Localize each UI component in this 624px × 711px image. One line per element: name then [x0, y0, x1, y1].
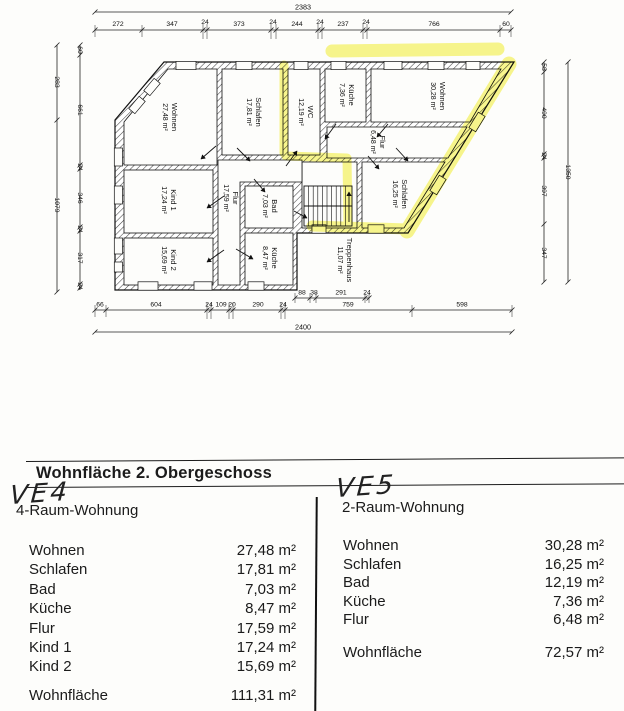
window — [236, 61, 252, 69]
dim: 317 — [76, 252, 83, 264]
window — [248, 282, 264, 290]
dim: 58 — [540, 63, 547, 71]
dim: 24 — [362, 19, 370, 26]
dim: 24 — [205, 302, 213, 309]
dim: 60 — [76, 46, 83, 54]
dim: 24 — [279, 302, 287, 309]
dim-right-total: 1350 — [564, 164, 571, 179]
dim: 346 — [76, 192, 83, 204]
dim: 347 — [166, 21, 178, 28]
dim: 766 — [428, 21, 440, 28]
dim: 661 — [76, 104, 83, 116]
window — [466, 61, 480, 69]
room-area: 7,36 m² — [553, 593, 604, 612]
dim: 24 — [76, 163, 83, 171]
room-label: Kind 1 — [16, 638, 72, 657]
dim: 24 — [363, 290, 371, 297]
label-treppenhaus: Treppenhaus11,07 m² — [336, 238, 354, 283]
room-area: 17,59 m² — [237, 619, 296, 638]
left-apartment-type: 4-Raum-Wohnung — [16, 502, 138, 519]
room-label: Wohnen — [340, 537, 399, 556]
room-area: 7,03 m² — [245, 580, 296, 599]
window — [114, 186, 122, 204]
dim: 759 — [342, 302, 354, 309]
room-area: 12,19 m² — [545, 574, 604, 593]
room-kind1-ve4 — [124, 170, 213, 233]
horizontal-rule-top — [26, 457, 624, 462]
area-row: Schlafen16,25 m² — [340, 556, 604, 575]
room-label: Küche — [16, 599, 72, 618]
dim: 244 — [291, 21, 303, 28]
window — [176, 61, 196, 69]
dim: 20 — [228, 302, 236, 309]
window — [294, 61, 308, 69]
floor-plan-drawing: Wohnen27,48 m² Schlafen17,81 m² WC12,19 … — [0, 0, 624, 455]
room-area: 27,48 m² — [237, 541, 296, 560]
ve4-total-row: Wohnfläche 111,31 m² — [16, 687, 296, 704]
dim: 24 — [316, 19, 324, 26]
dim: 373 — [233, 21, 245, 28]
room-area: 17,81 m² — [237, 560, 296, 579]
room-label: Flur — [16, 619, 55, 638]
room-area: 8,47 m² — [245, 599, 296, 618]
window — [114, 238, 122, 254]
room-area: 15,69 m² — [237, 657, 296, 676]
total-label: Wohnfläche — [16, 687, 108, 704]
dim: 66 — [96, 302, 104, 309]
area-row: Bad7,03 m² — [16, 580, 296, 599]
room-label: Schlafen — [340, 556, 401, 575]
window — [331, 61, 346, 69]
column-divider — [314, 497, 317, 711]
dim: 291 — [335, 290, 347, 297]
window — [114, 262, 122, 272]
dim: 88 — [298, 290, 306, 297]
room-area: 17,24 m² — [237, 638, 296, 657]
table-title: Wohnfläche 2. Obergeschoss — [36, 464, 272, 483]
dim: 38 — [310, 290, 318, 297]
area-row: Wohnen30,28 m² — [340, 537, 604, 556]
area-row: Küche8,47 m² — [16, 599, 296, 618]
area-row: Schlafen17,81 m² — [16, 560, 296, 579]
room-area: 16,25 m² — [545, 556, 604, 575]
room-label: Schlafen — [16, 560, 87, 579]
highlight-bottom-wall — [312, 226, 407, 229]
area-row: Kind 215,69 m² — [16, 657, 296, 676]
area-row: Kind 117,24 m² — [16, 638, 296, 657]
dim: 283 — [53, 76, 60, 88]
room-label: Küche — [340, 593, 386, 612]
dim-top-total: 2383 — [295, 3, 311, 12]
horizontal-rule-under-title — [26, 483, 624, 488]
room-label: Bad — [16, 580, 56, 599]
room-area: 30,28 m² — [545, 537, 604, 556]
dim: 397 — [540, 185, 547, 197]
area-row: Flur6,48 m² — [340, 611, 604, 630]
dim: 490 — [540, 107, 547, 119]
scanned-document-page: Wohnen27,48 m² Schlafen17,81 m² WC12,19 … — [0, 0, 624, 711]
room-label: Flur — [340, 611, 369, 630]
window — [114, 148, 122, 166]
room-label: Wohnen — [16, 541, 85, 560]
dim: 272 — [112, 21, 124, 28]
dim: 347 — [540, 247, 547, 259]
room-label: Bad — [340, 574, 370, 593]
dim: 290 — [252, 302, 264, 309]
dim: 60 — [502, 21, 510, 28]
room-kind2-ve4 — [124, 238, 213, 285]
area-row: Flur17,59 m² — [16, 619, 296, 638]
room-label: Kind 2 — [16, 657, 72, 676]
total-label: Wohnfläche — [340, 644, 422, 661]
window — [194, 282, 212, 290]
dim: 1079 — [53, 197, 60, 212]
ve4-room-list: Wohnen27,48 m² Schlafen17,81 m² Bad7,03 … — [16, 541, 296, 677]
right-apartment-type: 2-Raum-Wohnung — [342, 499, 464, 516]
area-row: Küche7,36 m² — [340, 593, 604, 612]
dim: 24 — [76, 225, 83, 233]
area-row: Wohnen27,48 m² — [16, 541, 296, 560]
dim: 604 — [150, 302, 162, 309]
dim: 24 — [201, 19, 209, 26]
window — [138, 282, 158, 290]
dim: 237 — [337, 21, 349, 28]
window — [428, 61, 444, 69]
ve5-total-row: Wohnfläche 72,57 m² — [340, 644, 604, 661]
dim-bottom-total: 2400 — [295, 323, 311, 332]
room-area: 6,48 m² — [553, 611, 604, 630]
dim: 598 — [456, 302, 468, 309]
area-row: Bad12,19 m² — [340, 574, 604, 593]
dim: 24 — [540, 152, 547, 160]
dim: 24 — [76, 282, 83, 290]
total-area: 111,31 m² — [231, 687, 296, 704]
dim: 24 — [269, 19, 277, 26]
ve5-room-list: Wohnen30,28 m² Schlafen16,25 m² Bad12,19… — [340, 537, 604, 630]
dim: 109 — [215, 302, 227, 309]
window — [384, 61, 402, 69]
total-area: 72,57 m² — [545, 644, 604, 661]
room-bad-ve4 — [245, 186, 293, 228]
highlight-top-wall — [332, 49, 498, 51]
